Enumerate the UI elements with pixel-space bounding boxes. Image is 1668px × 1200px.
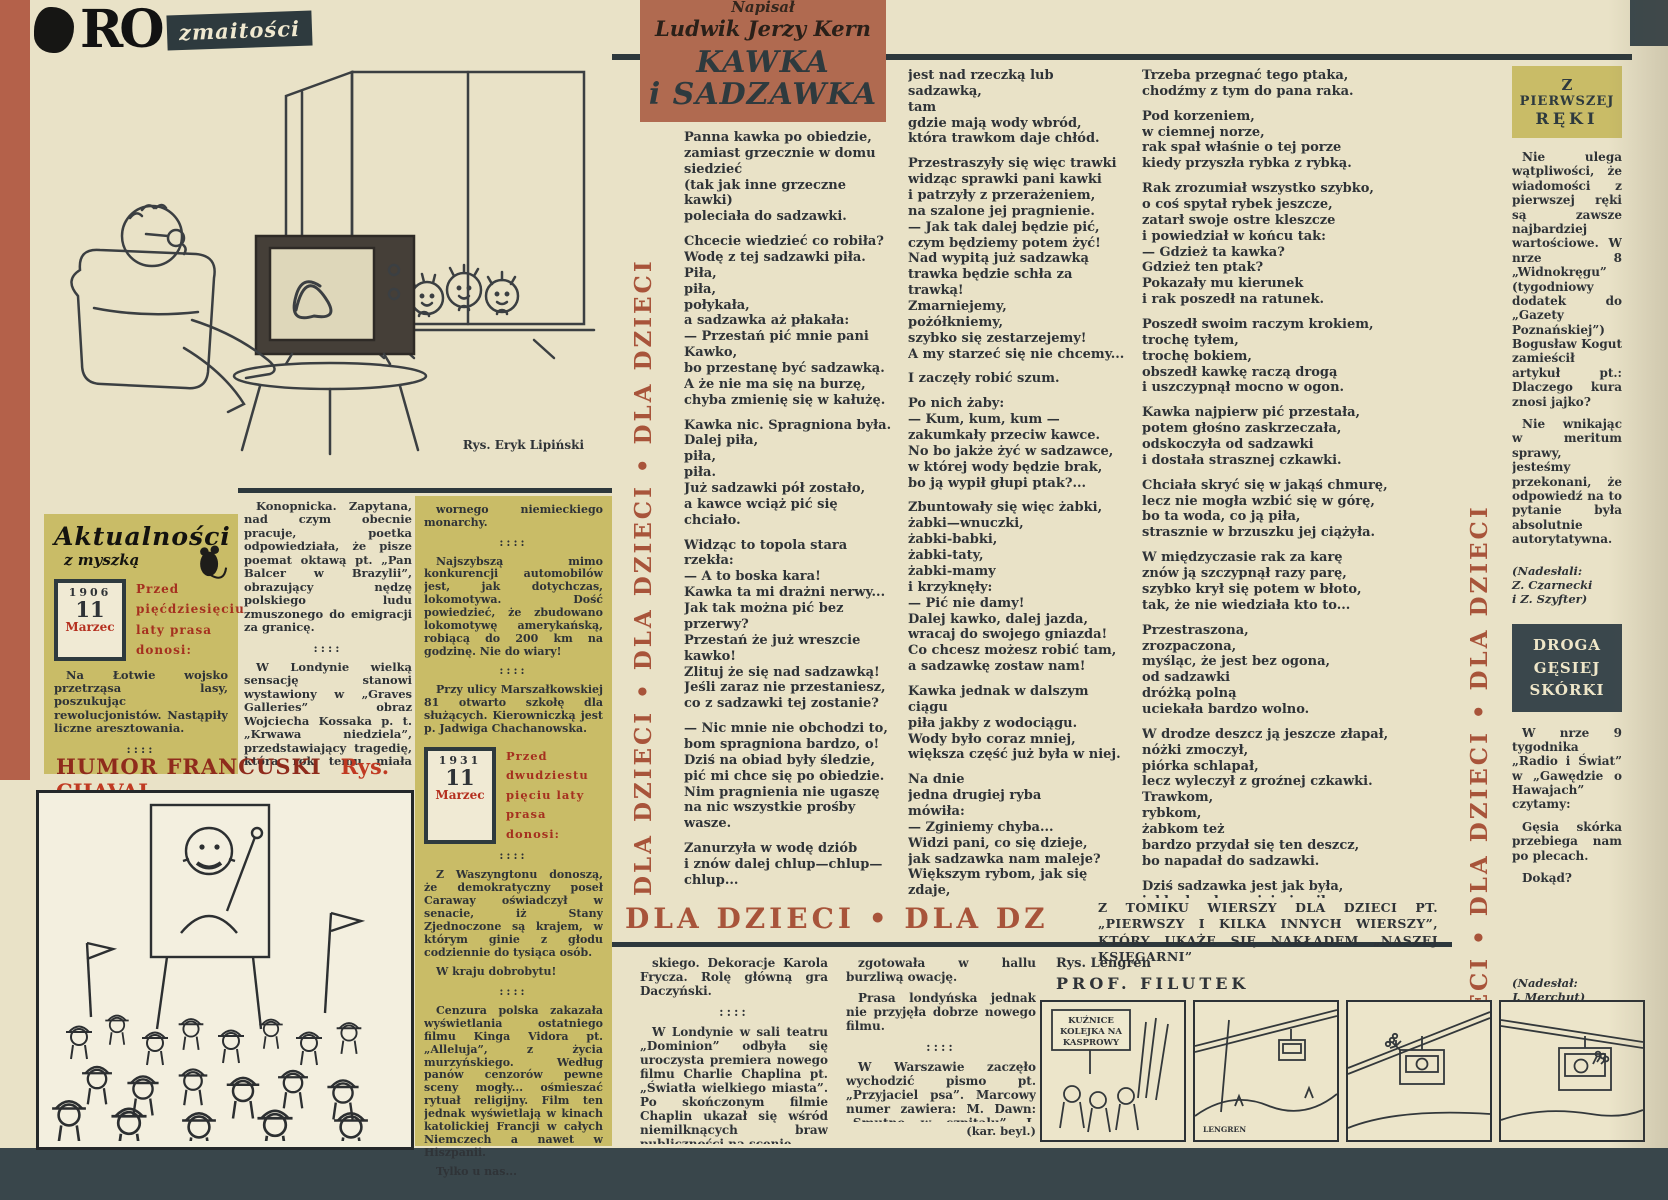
paragraph: — Nic mnie nie obchodzi to, bom spragnio…: [684, 721, 898, 832]
tv-cartoon-illustration: [34, 58, 612, 458]
poem-title-line2: i SADZAWKA: [640, 79, 886, 111]
paragraph: Widząc to topola stara rzekła: — A to bo…: [684, 538, 898, 712]
paragraph: W Warszawie zaczęło wychodzić pismo pt. …: [846, 1060, 1036, 1122]
box2-title-line2: GĘSIEJ: [1514, 657, 1620, 680]
sidebar-article-1: Nie ulega wątpliwości, że wiadomości z p…: [1512, 150, 1622, 564]
tv-cartoon-panel: Rys. Eryk Lipiński: [34, 58, 612, 488]
crowd: [52, 1016, 368, 1141]
paragraph: Chciała skryć się w jakąś chmurę, lecz n…: [1142, 478, 1438, 541]
paragraph: Panna kawka po obiedzie, zamiast grzeczn…: [684, 130, 898, 225]
paragraph: Chcecie wiedzieć co robiła? Wodę z tej s…: [684, 234, 898, 408]
news-column-d-wrap: zgotowała w hallu burzliwą owację.Prasa …: [846, 956, 1036, 1144]
paragraph: Na dnie jedna drugiej ryba mówiła: — Zgi…: [908, 772, 1128, 898]
mouse-icon: [194, 540, 228, 584]
paragraph: W drodze deszcz ją jeszcze złapał, nóżki…: [1142, 727, 1438, 870]
poem-column-1: Panna kawka po obiedzie, zamiast grzeczn…: [684, 130, 898, 898]
dla-dzieci-strip-right: DLA DZIECI • DLA DZIECI • DLA DZIECI: [1452, 66, 1506, 1142]
poem-title-line1: KAWKA: [640, 47, 886, 79]
paragraph: W nrze 9 tygodnika „Radio i Świat” w „Ga…: [1512, 726, 1622, 812]
sidebar-article-2: W nrze 9 tygodnika „Radio i Świat” w „Ga…: [1512, 726, 1622, 976]
television: [256, 236, 414, 364]
comic-panel-1: KUŹNICE KOLEJKA NA KASPROWY: [1040, 1000, 1186, 1142]
news-panel-b: wornego niemieckiego monarchy.::::Najszy…: [415, 496, 612, 1146]
paragraph: Na Łotwie wojsko przetrząsa lasy, poszuk…: [54, 669, 228, 736]
paragraph: ::::: [244, 642, 412, 655]
press-lead-1906: Przed pięćdziesięciu laty prasa donosi:: [136, 579, 245, 661]
box1-title-line2: PIERWSZEJ: [1514, 94, 1620, 109]
tomik-note: Z TOMIKU WIERSZY DLA DZIECI PT. „PIERWSZ…: [1098, 900, 1438, 944]
paragraph: Kawka jednak w dalszym ciągu piła jakby …: [908, 684, 1128, 763]
paragraph: W Londynie wielką sensację stanowi wysta…: [244, 661, 412, 768]
humor-heading: HUMOR FRANCUSKI Rys. CHAVAL: [56, 754, 412, 784]
z-pierwszej-reki-box: Z PIERWSZEJ RĘKI: [1512, 66, 1622, 138]
paragraph: Tylko u nas...: [424, 1166, 603, 1179]
paragraph: Dokąd?: [1512, 871, 1622, 885]
dla-dzieci-strip-left-text: DLA DZIECI • DLA DZIECI • DLA DZIECI: [632, 66, 655, 896]
bottom-band: [0, 1148, 1668, 1200]
paragraph: Trzeba przegnać tego ptaka, chodźmy z ty…: [1142, 68, 1438, 100]
paragraph: jest nad rzeczką lub sadzawką, tam gdzie…: [908, 68, 1128, 147]
paragraph: Po nich żaby: — Kum, kum, kum — zakumkał…: [908, 396, 1128, 491]
sidebar: Z PIERWSZEJ RĘKI Nie ulega wątpliwości, …: [1512, 66, 1622, 1142]
poem-byline: Ludwik Jerzy Kern: [640, 16, 886, 41]
paragraph: Nie wnikając w meritum sprawy, jesteśmy …: [1512, 417, 1622, 547]
paragraph: ::::: [846, 1040, 1036, 1054]
paragraph: Kawka najpierw pić przestała, potem głoś…: [1142, 405, 1438, 468]
poem-byline-label: Napisał: [640, 0, 886, 16]
calendar-1931-day: 11: [428, 767, 492, 788]
news-column-d-credit: (kar. beyl.): [846, 1124, 1036, 1138]
poem-column-2: jest nad rzeczką lub sadzawką, tam gdzie…: [908, 68, 1128, 898]
children-peeking: [411, 265, 518, 316]
newspaper-page: RO zmaitości: [0, 0, 1668, 1200]
comic-panel-2: LENGREN: [1193, 1000, 1339, 1142]
mid-left-rule: [238, 488, 612, 493]
calendar-1906: 1906 11 Marzec: [54, 579, 126, 661]
table: [234, 363, 426, 454]
paragraph: Nie ulega wątpliwości, że wiadomości z p…: [1512, 150, 1622, 409]
poem-title-box: Napisał Ludwik Jerzy Kern KAWKA i SADZAW…: [640, 0, 886, 122]
paragraph: Przestraszyły się więc trawki widząc spr…: [908, 156, 1128, 362]
paragraph: W kraju dobrobytu!: [424, 966, 603, 979]
masthead-title-suffix: zmaitości: [166, 10, 312, 50]
calendar-1906-month: Marzec: [58, 620, 122, 634]
calendar-1906-day: 11: [58, 599, 122, 620]
top-right-corner-block: [1630, 0, 1668, 46]
paragraph: W Londynie w sali teatru „Dominion” odby…: [640, 1025, 828, 1144]
dla-dzieci-strip-right-text: DLA DZIECI • DLA DZIECI • DLA DZIECI: [1468, 66, 1491, 1142]
calendar-1931: 1931 11 Marzec: [424, 747, 496, 845]
news-column-c: skiego. Dekoracje Karola Frycza. Rolę gł…: [640, 956, 828, 1144]
dla-dzieci-strip-left: DLA DZIECI • DLA DZIECI • DLA DZIECI: [612, 66, 674, 896]
humor-title: HUMOR FRANCUSKI: [56, 754, 322, 779]
box1-title-line3: RĘKI: [1514, 109, 1620, 128]
filutek-comic: KUŹNICE KOLEJKA NA KASPROWY LENGREN: [1040, 1000, 1645, 1142]
tv-cartoon-caption: Rys. Eryk Lipiński: [463, 438, 584, 452]
masthead: RO zmaitości: [34, 2, 364, 58]
paragraph: ::::: [640, 1005, 828, 1019]
lengren-signature: LENGREN: [1203, 1125, 1246, 1134]
paragraph: Poszedł swoim raczym krokiem, trochę tył…: [1142, 317, 1438, 396]
paragraph: skiego. Dekoracje Karola Frycza. Rolę gł…: [640, 956, 828, 998]
crowd-cartoon-illustration: [39, 793, 405, 1141]
paragraph: Pod korzeniem, w ciemnej norze, rak spał…: [1142, 109, 1438, 172]
left-margin-strip: [0, 0, 30, 780]
paragraph: Dziś sadzawka jest jak była, jakby kawka…: [1142, 879, 1438, 898]
paragraph: Cenzura polska zakazała wyświetlania ost…: [424, 1005, 603, 1159]
masthead-title-prefix: RO: [80, 4, 161, 56]
news-column-d: zgotowała w hallu burzliwą owację.Prasa …: [846, 956, 1036, 1122]
aktualnosci-panel: Aktualności z myszką 1906 11 Marzec Prze…: [44, 514, 238, 774]
box2-title-line3: SKÓRKI: [1514, 679, 1620, 702]
paragraph: ::::: [424, 986, 603, 999]
news-column-0: Na Łotwie wojsko przetrząsa lasy, poszuk…: [54, 669, 228, 755]
news-column-b-bottom: ::::Z Waszyngtonu donoszą, że demokratyc…: [424, 850, 603, 1180]
paragraph: Zanurzyła w wodę dziób i znów dalej chlu…: [684, 841, 898, 889]
paragraph: ::::: [424, 665, 603, 678]
paragraph: Prasa londyńska jednak nie przyjęła dobr…: [846, 991, 1036, 1033]
paragraph: Konopnicka. Zapytana, nad czym obecnie p…: [244, 500, 412, 635]
poem-title: KAWKA i SADZAWKA: [640, 47, 886, 110]
paragraph: Zbuntowały się więc żabki, żabki—wnuczki…: [908, 500, 1128, 674]
nadeslali-credit: (Nadesłali: Z. Czarnecki i Z. Szyfter): [1512, 564, 1622, 606]
paragraph: ::::: [54, 743, 228, 755]
ink-blot-icon: [34, 7, 74, 53]
droga-gesiej-skorki-box: DROGA GĘSIEJ SKÓRKI: [1512, 624, 1622, 712]
filutek-credit: Rys. Lengren: [1056, 956, 1151, 971]
paragraph: Kawka nic. Spragniona była. Dalej piła, …: [684, 418, 898, 529]
paragraph: W międzyczasie rak za karę znów ją szczy…: [1142, 550, 1438, 613]
filutek-title: PROF. FILUTEK: [1056, 974, 1249, 993]
comic-panel-3: [1346, 1000, 1492, 1142]
press-lead-1931: Przed dwudziestu pięciu laty prasa donos…: [506, 747, 603, 845]
paragraph: wornego niemieckiego monarchy.: [424, 504, 603, 530]
paragraph: Rak zrozumiał wszystko szybko, o coś spy…: [1142, 181, 1438, 308]
box1-title-line1: Z: [1514, 76, 1620, 94]
comic-panel-4: [1499, 1000, 1645, 1142]
paragraph: Przy ulicy Marszałkowskiej 81 otwarto sz…: [424, 684, 603, 735]
calendar-1931-month: Marzec: [428, 788, 492, 802]
paragraph: Gęsia skórka przebiega nam po plecach.: [1512, 820, 1622, 863]
news-column-b-top: wornego niemieckiego monarchy.::::Najszy…: [424, 504, 603, 743]
dla-dzieci-strip-bottom: DLA DZIECI • DLA DZIECI •: [625, 902, 1045, 940]
paragraph: ::::: [424, 537, 603, 550]
paragraph: Z Waszyngtonu donoszą, że demokratyczny …: [424, 869, 603, 959]
paragraph: zgotowała w hallu burzliwą owację.: [846, 956, 1036, 984]
paragraph: ::::: [424, 850, 603, 863]
paragraph: Przestraszona, zrozpaczona, myśląc, że j…: [1142, 623, 1438, 718]
poem-column-3: Trzeba przegnać tego ptaka, chodźmy z ty…: [1142, 68, 1438, 898]
kasprowy-sign-line2: KOLEJKA NA: [1060, 1027, 1122, 1037]
box2-title-line1: DROGA: [1514, 634, 1620, 657]
kasprowy-sign-line1: KUŹNICE: [1068, 1014, 1114, 1026]
paragraph: Najszybszą mimo konkurencji automobilów …: [424, 556, 603, 659]
news-column-a: Konopnicka. Zapytana, nad czym obecnie p…: [244, 500, 412, 768]
kasprowy-sign-line3: KASPROWY: [1063, 1038, 1120, 1048]
crowd-cartoon-panel: [36, 790, 414, 1150]
paragraph: I zaczęły robić szum.: [908, 371, 1128, 387]
